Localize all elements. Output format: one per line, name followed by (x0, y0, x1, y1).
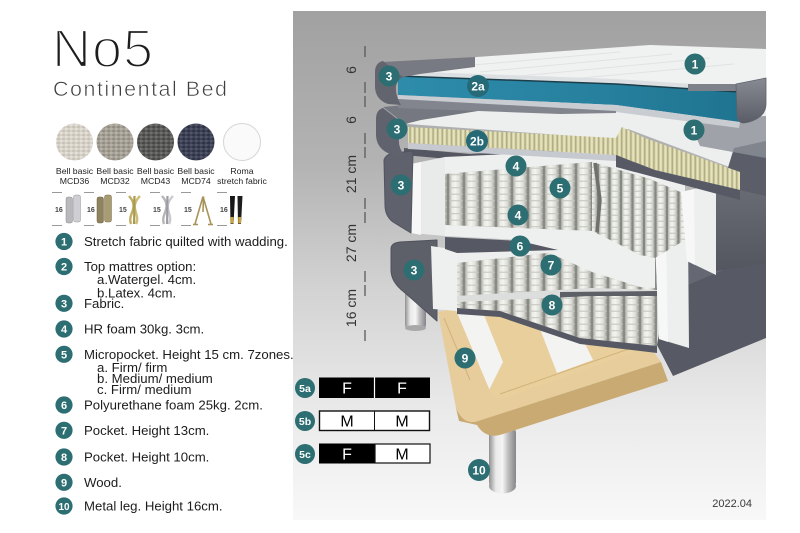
svg-text:6: 6 (343, 66, 359, 74)
svg-text:1: 1 (691, 124, 698, 138)
svg-text:3: 3 (394, 123, 401, 137)
svg-text:4: 4 (513, 160, 520, 174)
svg-text:9: 9 (462, 352, 469, 366)
svg-text:7: 7 (548, 259, 555, 273)
svg-text:3: 3 (411, 264, 418, 278)
svg-text:6: 6 (343, 116, 359, 124)
svg-text:6: 6 (517, 240, 524, 254)
svg-text:2b: 2b (470, 135, 484, 149)
svg-text:F: F (342, 381, 352, 398)
svg-text:M: M (395, 414, 408, 431)
svg-text:27 cm: 27 cm (343, 224, 359, 262)
svg-text:5c: 5c (299, 449, 311, 461)
svg-text:3: 3 (386, 70, 393, 84)
svg-text:F: F (342, 447, 352, 464)
svg-text:4: 4 (515, 209, 522, 223)
svg-text:M: M (395, 447, 408, 464)
svg-text:2022.04: 2022.04 (712, 498, 752, 510)
svg-text:5b: 5b (299, 416, 311, 428)
svg-text:5a: 5a (299, 383, 311, 395)
svg-text:F: F (397, 381, 407, 398)
svg-text:8: 8 (549, 299, 556, 313)
svg-text:10: 10 (472, 464, 486, 478)
svg-text:3: 3 (398, 179, 405, 193)
svg-text:M: M (340, 414, 353, 431)
svg-text:2a: 2a (471, 80, 485, 94)
svg-text:1: 1 (692, 58, 699, 72)
svg-text:16 cm: 16 cm (343, 289, 359, 327)
svg-text:5: 5 (557, 182, 564, 196)
svg-text:21 cm: 21 cm (343, 155, 359, 193)
